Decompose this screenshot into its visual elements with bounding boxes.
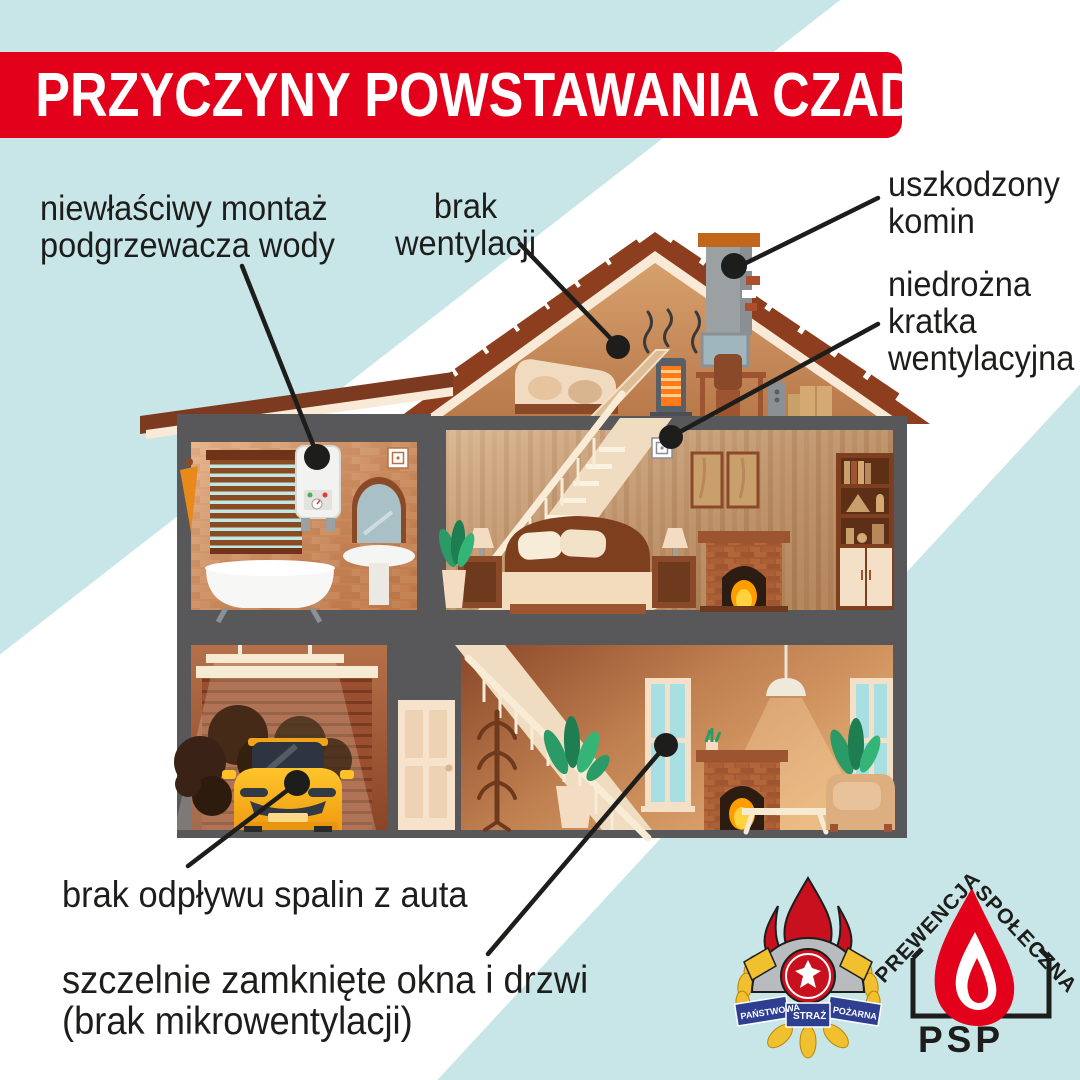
computer-tower — [768, 382, 786, 418]
infographic-canvas: PRZYCZYNY POWSTAWANIA CZADU — [0, 0, 1080, 1080]
crest-eagle-icon — [781, 949, 835, 1003]
fireplace-bedroom — [698, 531, 790, 612]
armchair — [826, 774, 895, 832]
callout-dot-water-heater — [304, 444, 330, 470]
label-car-exhaust: brak odpływu spalin z auta — [62, 876, 468, 913]
callout-dot-car — [284, 770, 310, 796]
label-ventilation: brak wentylacji — [340, 188, 591, 262]
prevention-logo: PREWENCJA SPOŁECZNA PSP — [871, 867, 1080, 1060]
label-chimney: uszkodzony komin — [888, 166, 1060, 240]
mirror — [352, 477, 406, 543]
house — [140, 232, 930, 838]
bathroom — [180, 442, 417, 622]
callout-dot-ventilation — [606, 335, 630, 359]
bookshelf — [836, 453, 894, 610]
callout-dot-chimney — [721, 253, 747, 279]
interior-door — [398, 700, 455, 830]
ribbon-text-center: STRAŻ — [793, 1009, 826, 1022]
damaged-chimney — [698, 233, 760, 335]
window-blinds — [206, 450, 306, 554]
label-windows: szczelnie zamknięte okna i drzwi (brak m… — [62, 960, 588, 1042]
vent-grille-icon — [388, 448, 408, 468]
house-cutaway-illustration: PAŃSTWOWA STRAŻ POŻARNA PREWENCJA SPOŁEC… — [0, 0, 1080, 1080]
electric-heater — [650, 358, 692, 419]
label-water-heater: niewłaściwy montaż podgrzewacza wody — [40, 190, 335, 264]
callout-dot-grille — [659, 425, 683, 449]
callout-dot-windows — [654, 733, 678, 757]
callout-line-chimney — [740, 198, 878, 266]
prevention-psp-text: PSP — [918, 1019, 1004, 1060]
label-vent-grille: niedrożna kratka wentylacyjna — [888, 266, 1074, 377]
garage — [174, 645, 387, 832]
psp-crest-logo: PAŃSTWOWA STRAŻ POŻARNA — [735, 878, 882, 1058]
